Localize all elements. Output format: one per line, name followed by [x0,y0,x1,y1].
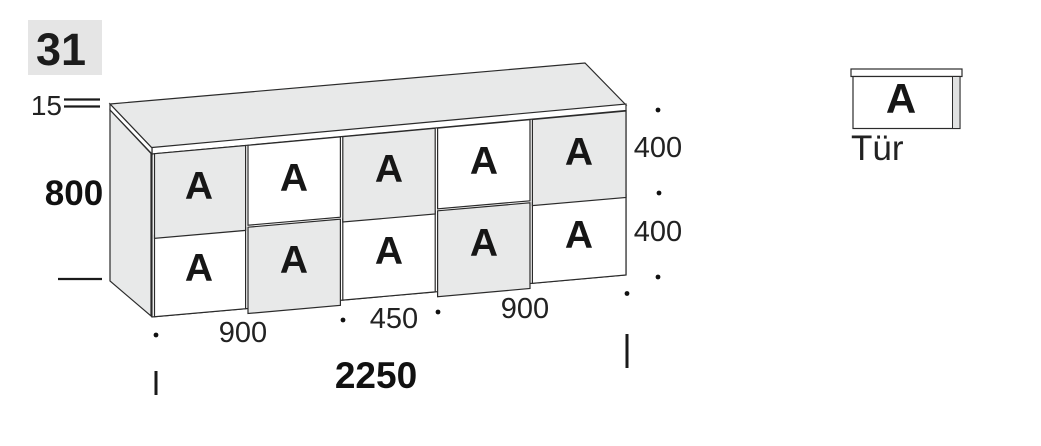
dim-width-right: 900 [501,293,549,325]
dim-row-top: 400 [634,132,682,164]
dim-height: 800 [45,174,103,213]
dim-dot [154,333,159,338]
furniture-diagram-page: 31 A A A A A A A A A A [0,0,1041,446]
dim-dot [625,291,630,296]
dimension-top-thickness: 15 [31,90,100,121]
dim-row-bottom: 400 [634,216,682,248]
door-label: A [470,222,498,265]
door-label: A [565,131,593,174]
door-label: A [375,230,403,273]
legend-door-symbol: A [886,75,916,122]
dim-dot [657,191,662,196]
dim-width-middle: 450 [370,303,418,335]
dimension-height: 800 [45,174,103,279]
door-label: A [185,165,213,208]
dim-dot [656,108,661,113]
door-label: A [565,214,593,257]
legend-door-side-edge [953,77,961,129]
legend: A Tür [851,69,962,168]
dim-width-left: 900 [219,317,267,349]
cabinet-drawing: A A A A A A A A A A [110,63,626,317]
legend-door-label: Tür [851,129,904,168]
dim-dot [656,275,661,280]
door-label: A [375,148,403,191]
dim-total-width: 2250 [335,355,417,396]
dim-dot [436,310,441,315]
dim-top-thickness: 15 [31,90,62,121]
item-badge: 31 [28,20,102,75]
door-label: A [280,239,308,282]
dim-dot [341,318,346,323]
door-label: A [280,157,308,200]
cabinet-diagram-canvas: 31 A A A A A A A A A A [0,0,1041,446]
dimension-row-heights: 400 400 [634,108,682,280]
door-label: A [470,140,498,183]
item-number: 31 [36,24,86,75]
door-label: A [185,247,213,290]
